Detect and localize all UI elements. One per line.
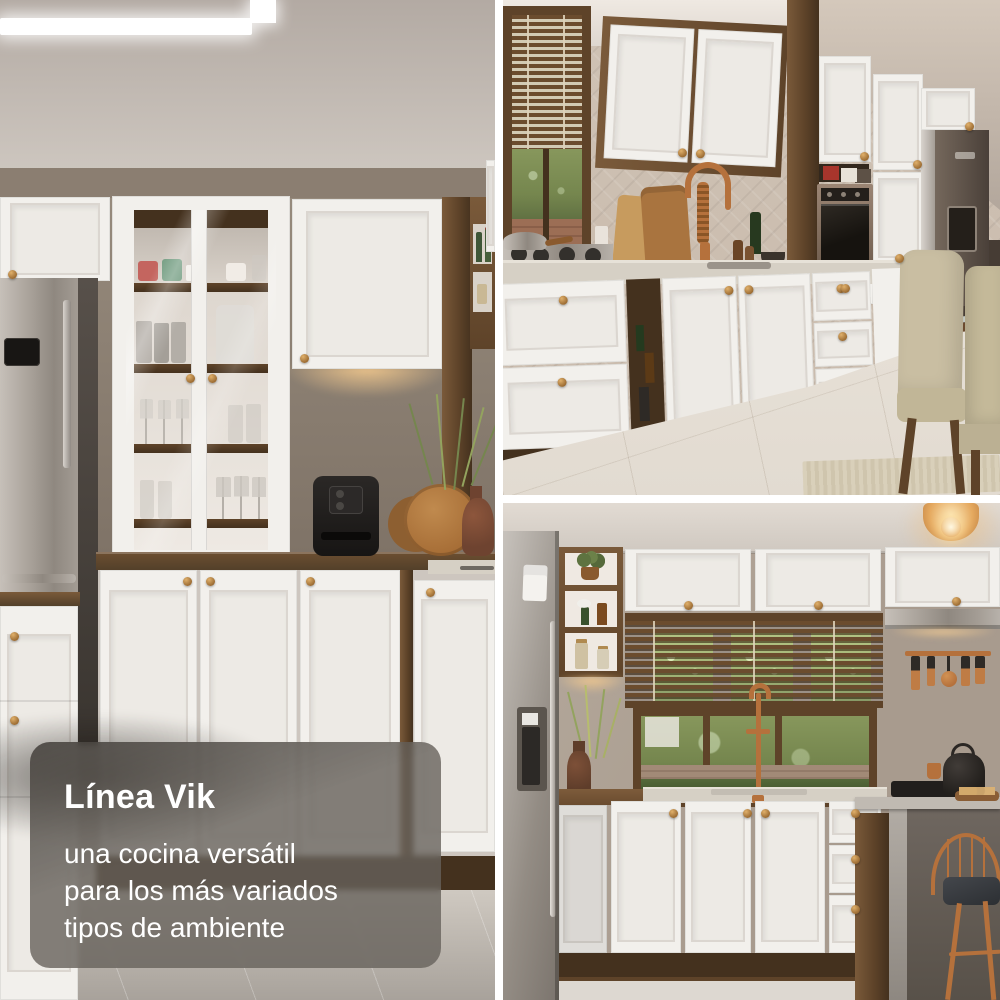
- sink-edge: [460, 566, 494, 570]
- cabinet-knob: [186, 374, 195, 383]
- hanging-spatula: [911, 656, 920, 690]
- cabinet-knob: [10, 716, 19, 725]
- caption-line: una cocina versátil: [64, 835, 407, 872]
- recessed-light-strip-corner: [250, 0, 276, 23]
- window-blinds: [512, 15, 582, 149]
- hanging-pan-handle: [947, 656, 950, 672]
- cabinet-knob: [183, 577, 192, 586]
- faucet-handles: [746, 729, 770, 734]
- jar: [477, 284, 487, 304]
- jar-with-cork: [597, 649, 609, 669]
- cabinet-knob: [743, 809, 752, 818]
- amber-bottle: [597, 603, 607, 625]
- distant-house: [645, 717, 679, 747]
- cookies: [959, 787, 995, 795]
- photo-bottom-right-kitchen: [503, 503, 1000, 1000]
- kitchen-collage: Línea Vik una cocina versátil para los m…: [0, 0, 1000, 1000]
- refrigerator-handle: [63, 300, 71, 468]
- cabinet-knob: [206, 577, 215, 586]
- hood-light-glow: [893, 629, 993, 638]
- faucet-spout: [725, 194, 731, 210]
- cabinet-knob: [913, 160, 922, 169]
- pendant-bulb: [941, 517, 961, 537]
- upper-cabinet-left-door: [0, 197, 110, 281]
- sink-cabinet-door: [685, 801, 751, 953]
- photo-left-kitchen: Línea Vik una cocina versátil para los m…: [0, 0, 495, 1000]
- freezer-handle: [2, 574, 76, 583]
- cabinet-knob: [426, 588, 435, 597]
- oven-knob: [827, 192, 832, 197]
- jar-with-cork: [575, 643, 588, 669]
- range-hood: [885, 609, 1000, 629]
- cabinet-knob: [669, 809, 678, 818]
- plant-pot-bronze: [581, 567, 599, 580]
- hanging-whisk: [975, 656, 985, 684]
- sink-cabinet-door: [755, 801, 825, 953]
- blind-bottom-rail: [625, 701, 883, 708]
- air-fryer-dial: [336, 490, 344, 498]
- under-cabinet-glow: [288, 366, 446, 396]
- cabinet-knob: [814, 601, 823, 610]
- green-bottle: [581, 607, 589, 625]
- upper-cabinet-group: [595, 16, 789, 178]
- fridge-logo: [955, 152, 975, 159]
- upper-cabinet-door: [819, 56, 871, 162]
- recessed-light-strip: [0, 18, 252, 35]
- base-drawer: [812, 271, 872, 321]
- toe-kick: [559, 953, 883, 979]
- shelf-cubby: [565, 591, 617, 627]
- island-wood-side: [855, 813, 889, 1000]
- sink-cabinet-door: [611, 801, 681, 953]
- upper-cabinet-door: [885, 547, 1000, 607]
- stool-seat: [943, 877, 1000, 905]
- wall-cabinet-sliver: [486, 160, 495, 252]
- cabinet-knob: [761, 809, 770, 818]
- dispenser-body: [522, 727, 540, 785]
- blind-valance: [625, 613, 883, 621]
- caption-line: para los más variados: [64, 872, 407, 909]
- hanging-spoon: [927, 656, 935, 686]
- cabinet-knob: [684, 601, 693, 610]
- caption-card: Línea Vik una cocina versátil para los m…: [30, 742, 441, 968]
- base-drawer: [503, 280, 627, 366]
- photo-top-right-kitchen: [503, 0, 1000, 495]
- cabinet-knob: [851, 809, 860, 818]
- air-fryer-handle: [321, 532, 371, 540]
- ceramic-vase: [462, 498, 494, 556]
- caption-title: Línea Vik: [64, 778, 407, 817]
- island-countertop: [0, 592, 80, 606]
- cabinet-knob: [10, 632, 19, 641]
- white-flowers: [577, 599, 591, 608]
- cabinet-knob: [851, 905, 860, 914]
- dining-chair-back: [898, 249, 965, 402]
- fridge-control-panel: [522, 565, 547, 602]
- faucet-stem: [756, 693, 761, 799]
- cabinet-knob: [965, 122, 974, 131]
- refrigerator-side: [78, 278, 98, 746]
- oven-door-glass: [821, 204, 869, 262]
- cabinet-knob: [841, 284, 850, 293]
- base-drawer: [814, 321, 874, 367]
- blind-cord: [653, 621, 655, 701]
- glass-reflection: [126, 210, 276, 550]
- rack-bottle: [636, 325, 645, 351]
- hanging-copper-pan: [941, 671, 957, 687]
- air-fryer-panel: [329, 486, 363, 514]
- upper-cabinet-door: [691, 29, 782, 167]
- floor: [559, 981, 885, 1000]
- faucet-arch: [749, 683, 771, 699]
- light-switch: [595, 226, 608, 246]
- upper-cabinet-door: [873, 74, 923, 170]
- cabinet-knob: [8, 270, 17, 279]
- blind-cord: [833, 621, 835, 701]
- dining-chair-back: [965, 266, 1000, 430]
- upper-cabinet-right-door: [292, 199, 442, 369]
- chair-leg: [971, 450, 980, 495]
- island-edge-highlight: [889, 805, 907, 1000]
- cabinet-knob: [306, 577, 315, 586]
- dispenser-cup: [522, 713, 538, 725]
- cabinet-knob: [895, 254, 904, 263]
- rack-bottle: [645, 353, 655, 383]
- blind-cord: [527, 15, 529, 149]
- cabinet-knob: [851, 855, 860, 864]
- rack-bottle: [639, 387, 650, 421]
- corner-cabinet-door: [559, 805, 607, 953]
- tall-wood-panel: [787, 0, 819, 266]
- blind-cord: [563, 15, 565, 149]
- cabinet-knob: [860, 152, 869, 161]
- sink-inset: [707, 262, 771, 269]
- caption-line: tipos de ambiente: [64, 909, 407, 946]
- cabinet-knob: [208, 374, 217, 383]
- island-drawer-seam: [0, 700, 78, 702]
- fridge-water-dispenser: [947, 206, 977, 252]
- shelf-cubby: [565, 633, 617, 671]
- cookbooks: [823, 166, 839, 180]
- copper-moka-pot: [927, 763, 941, 779]
- wine-bottle: [476, 232, 482, 262]
- hanging-ladle: [961, 656, 970, 686]
- steel-pan: [503, 232, 547, 250]
- refrigerator-display: [4, 338, 40, 366]
- cabinet-knob: [952, 597, 961, 606]
- cabinet-knob: [300, 354, 309, 363]
- upper-cabinet-door: [604, 24, 695, 162]
